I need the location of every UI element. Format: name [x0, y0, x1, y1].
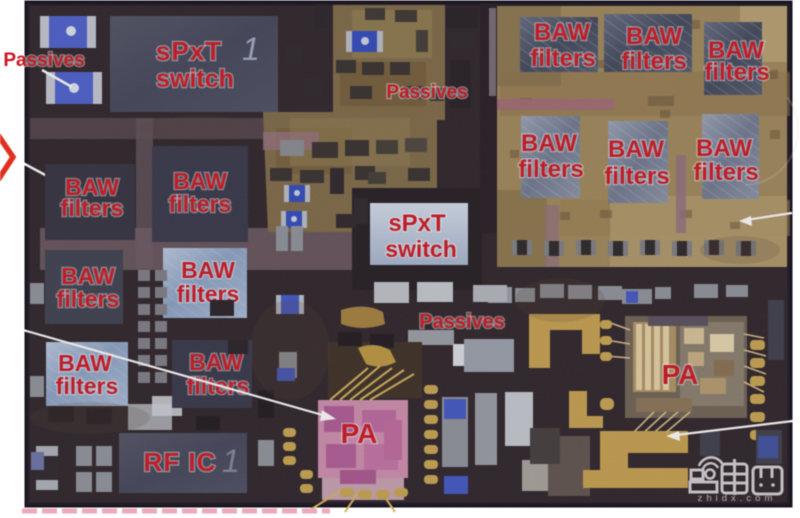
svg-text:zhidx.com: zhidx.com	[698, 493, 777, 504]
